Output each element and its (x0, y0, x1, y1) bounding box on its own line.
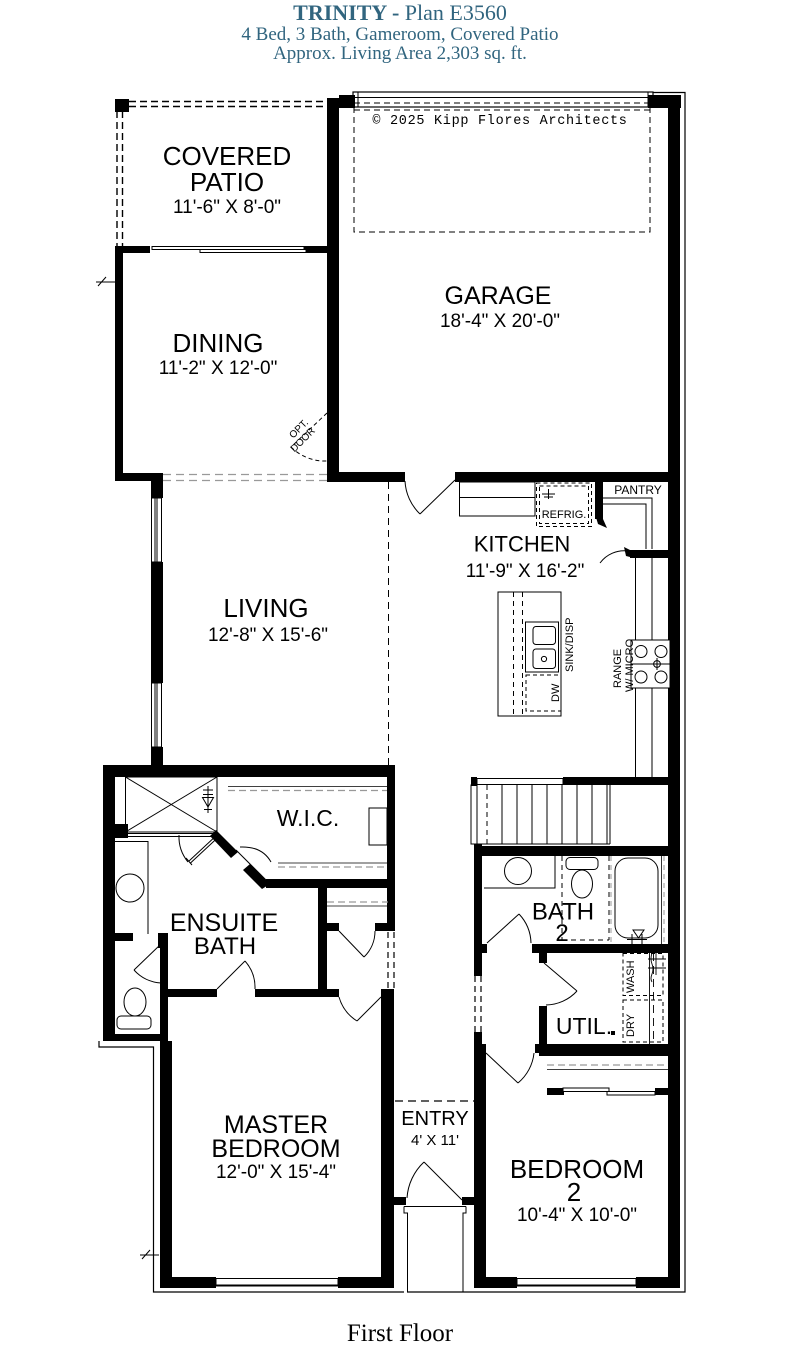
svg-text:REFRIG.: REFRIG. (542, 509, 587, 521)
svg-text:2: 2 (567, 1177, 581, 1207)
svg-text:W/ MICRO: W/ MICRO (624, 638, 636, 692)
svg-text:BATH: BATH (194, 933, 256, 960)
svg-text:10'-4" X 10'-0": 10'-4" X 10'-0" (517, 1205, 637, 1226)
svg-text:4' X 11': 4' X 11' (411, 1132, 459, 1149)
svg-text:KITCHEN: KITCHEN (474, 532, 571, 557)
svg-text:12'-8" X 15'-6": 12'-8" X 15'-6" (208, 625, 328, 646)
svg-text:11'-9" X 16'-2": 11'-9" X 16'-2" (466, 561, 585, 582)
svg-text:W.I.C.: W.I.C. (277, 805, 340, 831)
svg-text:WASH: WASH (625, 960, 637, 993)
svg-text:2: 2 (555, 920, 568, 947)
svg-text:DINING: DINING (173, 328, 264, 358)
svg-text:18'-4" X 20'-0": 18'-4" X 20'-0" (440, 311, 560, 332)
svg-text:© 2025 Kipp Flores Architects: © 2025 Kipp Flores Architects (372, 114, 627, 129)
svg-text:PATIO: PATIO (190, 167, 264, 197)
svg-text:PANTRY: PANTRY (614, 483, 662, 497)
svg-text:11'-2" X 12'-0": 11'-2" X 12'-0" (159, 358, 278, 379)
svg-text:ENTRY: ENTRY (401, 1108, 468, 1130)
svg-text:DW: DW (550, 683, 562, 702)
svg-text:UTIL.: UTIL. (556, 1013, 612, 1039)
svg-text:GARAGE: GARAGE (445, 282, 552, 310)
svg-text:11'-6" X 8'-0": 11'-6" X 8'-0" (173, 197, 281, 218)
svg-text:DRY: DRY (625, 1013, 637, 1037)
svg-text:First Floor: First Floor (347, 1320, 454, 1347)
svg-text:LIVING: LIVING (223, 593, 308, 623)
svg-text:12'-0" X 15'-4": 12'-0" X 15'-4" (216, 1162, 336, 1183)
svg-text:BEDROOM: BEDROOM (211, 1135, 340, 1163)
svg-text:SINK/DISP: SINK/DISP (564, 618, 576, 672)
svg-text:RANGE: RANGE (612, 649, 624, 688)
